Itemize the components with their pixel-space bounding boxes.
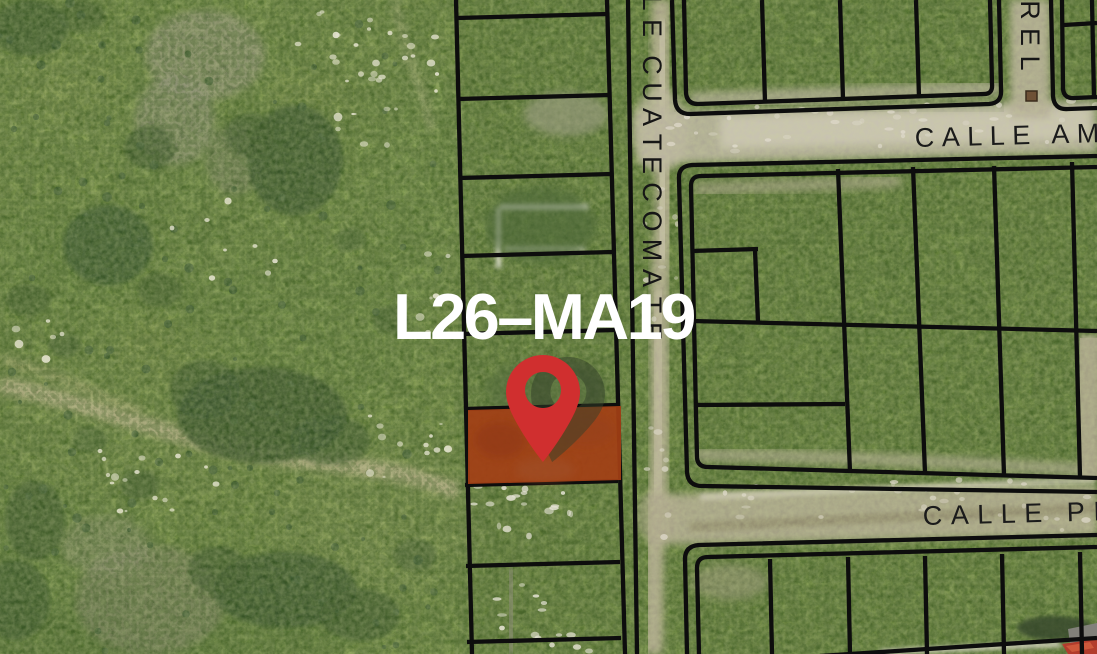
svg-text:E: E <box>637 19 667 37</box>
svg-text:R: R <box>1015 0 1045 20</box>
svg-text:C: C <box>637 182 667 202</box>
svg-text:CALLE AM: CALLE AM <box>914 118 1097 153</box>
svg-text:E: E <box>637 156 667 174</box>
svg-text:O: O <box>637 210 667 231</box>
svg-text:U: U <box>637 82 667 102</box>
svg-text:L: L <box>1015 55 1045 70</box>
svg-text:T: T <box>637 134 667 151</box>
svg-text:A: A <box>637 108 667 126</box>
svg-text:CALLE PI: CALLE PI <box>922 496 1097 531</box>
svg-text:C: C <box>637 55 667 75</box>
svg-text:E: E <box>1015 28 1045 46</box>
svg-text:L: L <box>637 0 667 11</box>
svg-text:L26–MA19: L26–MA19 <box>393 280 694 353</box>
svg-text:M: M <box>637 239 667 262</box>
